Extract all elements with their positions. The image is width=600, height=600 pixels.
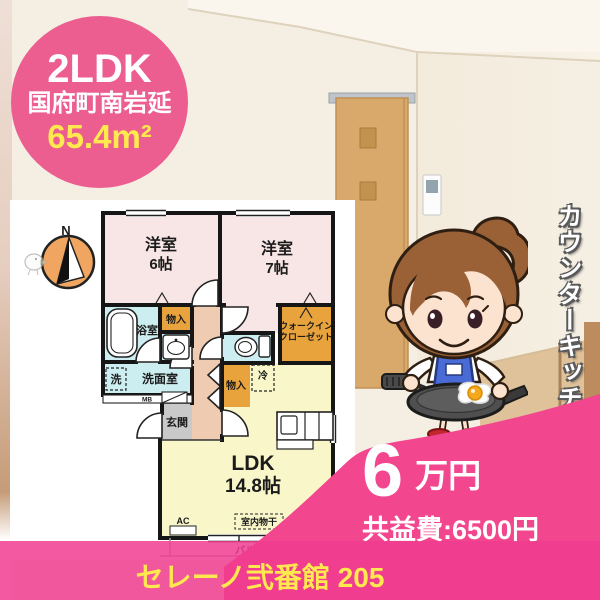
rent-unit: 万円	[415, 449, 481, 497]
flyer-stage: 2LDK 国府町南岩延 65.4m²	[0, 0, 600, 600]
price-block: 6 万円 共益費:6500円	[362, 436, 597, 547]
rent-amount: 6	[362, 436, 403, 506]
building-name: セレーノ弐番館 205	[20, 556, 500, 596]
